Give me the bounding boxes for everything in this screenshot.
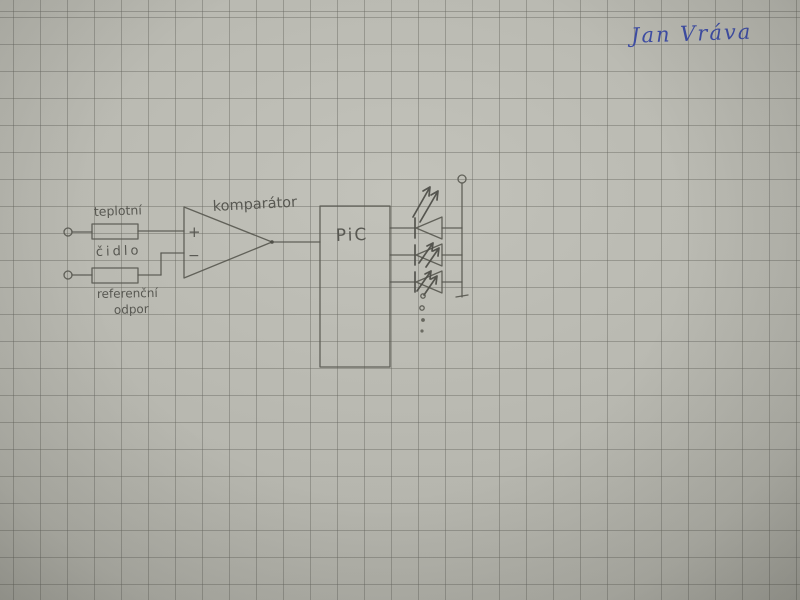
continuation-dots (420, 294, 425, 333)
microcontroller: PiC (320, 206, 415, 367)
supply-terminal (458, 175, 466, 183)
comparator-triangle (184, 207, 272, 278)
comparator: + − komparátor (184, 195, 320, 278)
supply-bus (456, 175, 468, 297)
led-2 (415, 243, 462, 267)
led-1 (413, 187, 462, 239)
comparator-label: komparátor (212, 195, 297, 215)
sensor-label-line2: čidlo (96, 243, 142, 260)
mcu-label: PiC (335, 225, 368, 246)
led-3 (415, 271, 462, 295)
input-terminal-bottom (64, 271, 72, 279)
ellipsis-dot (421, 294, 425, 298)
ellipsis-dot (420, 329, 423, 332)
reference-label-line2: odpor (114, 302, 149, 317)
comparator-minus-input: − (188, 248, 200, 264)
resistor-box-reference (92, 268, 138, 283)
resistor-box-temperature-sensor (92, 224, 138, 239)
graph-paper-photo: teplotní čidlo referenční odpor + − komp… (0, 0, 800, 600)
circuit-sketch: teplotní čidlo referenční odpor + − komp… (0, 0, 800, 600)
led-triangle (416, 217, 442, 239)
input-terminal-top (64, 228, 72, 236)
reference-label-line1: referenční (97, 286, 159, 301)
led-emission-arrow (413, 187, 430, 217)
reference-resistor-branch: referenční odpor (64, 253, 184, 317)
sensor-label-line1: teplotní (94, 202, 143, 219)
ellipsis-dot (421, 318, 425, 322)
comparator-plus-input: + (188, 223, 201, 241)
ellipsis-dot (420, 306, 424, 310)
temperature-sensor-branch: teplotní čidlo (64, 202, 184, 260)
